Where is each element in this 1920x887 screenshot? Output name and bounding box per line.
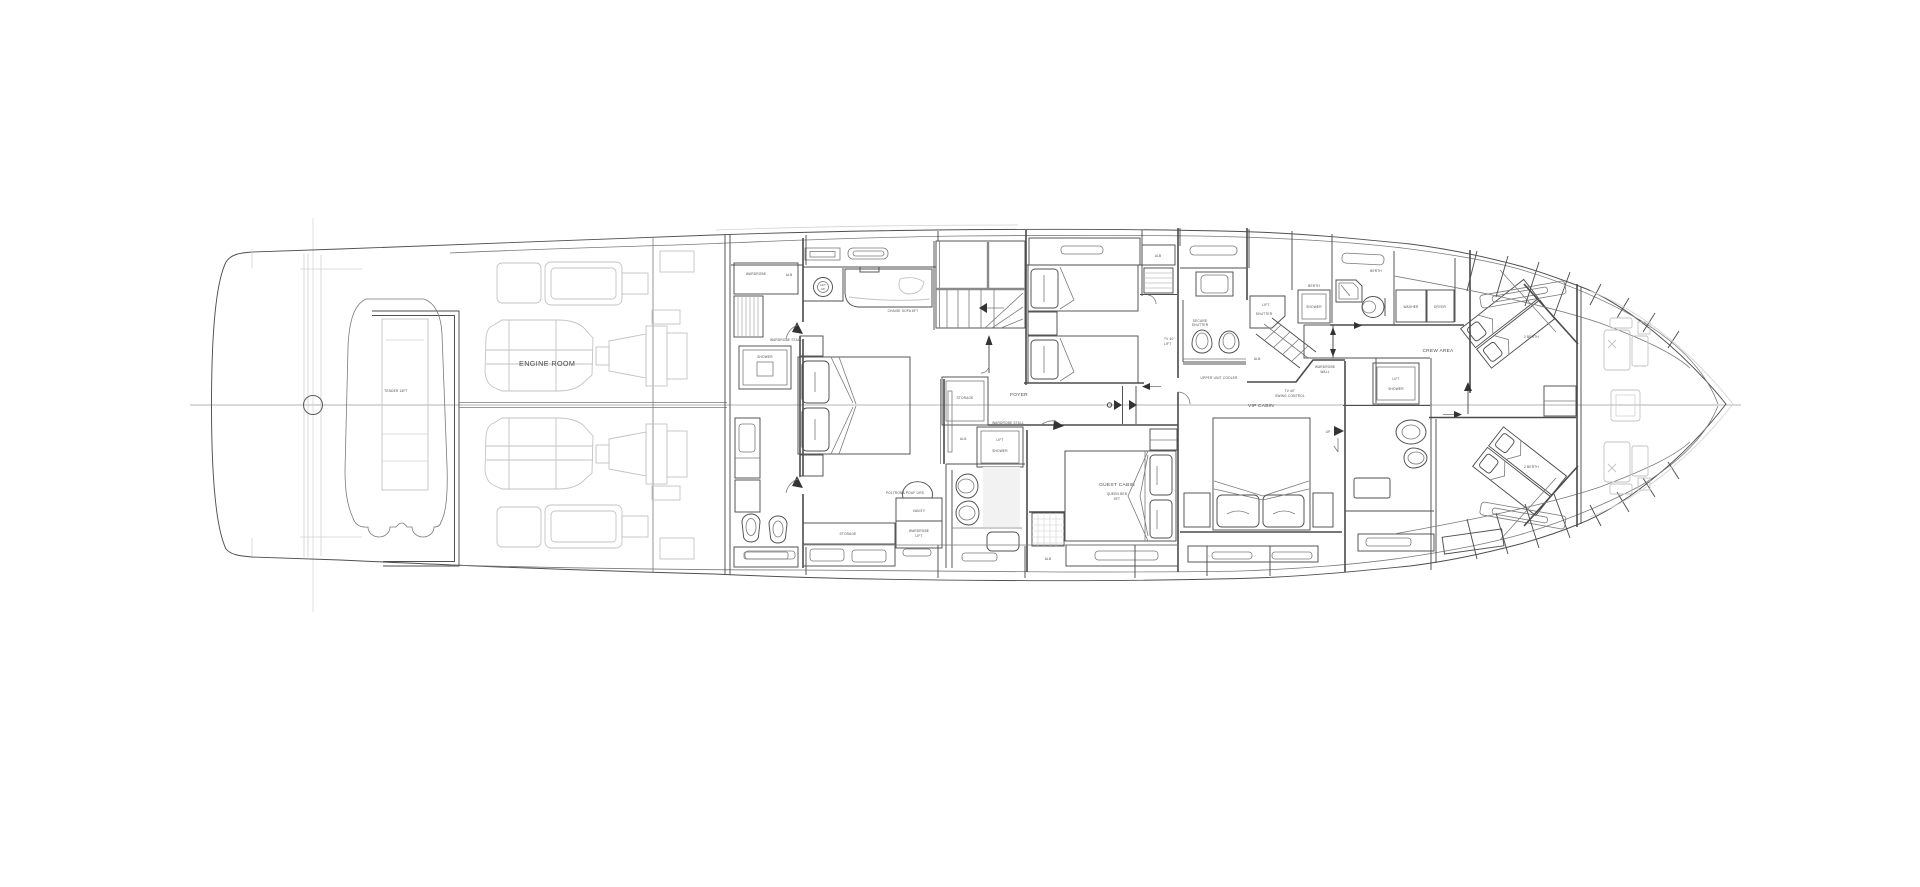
svg-text:LIFT: LIFT [996, 438, 1003, 442]
svg-text:SHUTTER: SHUTTER [1256, 312, 1273, 316]
svg-text:STORAGE: STORAGE [957, 396, 974, 400]
svg-text:SHOWER: SHOWER [1388, 387, 1404, 391]
svg-text:SHOWER: SHOWER [992, 449, 1008, 453]
svg-text:CREW AREA: CREW AREA [1422, 348, 1454, 354]
svg-text:UP: UP [1326, 430, 1331, 434]
svg-text:2 BERTH: 2 BERTH [1524, 465, 1539, 469]
svg-text:ALB: ALB [1045, 557, 1052, 561]
svg-text:STORAGE: STORAGE [840, 532, 857, 536]
svg-text:GUEST CABIN: GUEST CABIN [1099, 482, 1135, 488]
svg-text:ENGINE ROOM: ENGINE ROOM [519, 359, 575, 368]
svg-text:UP: UP [821, 287, 825, 291]
svg-text:TENDER 16FT: TENDER 16FT [384, 389, 408, 393]
svg-text:ALB: ALB [1254, 357, 1261, 361]
svg-text:QUEEN BED: QUEEN BED [1107, 492, 1128, 496]
svg-text:TV 40": TV 40" [1164, 337, 1175, 341]
svg-text:BERTH: BERTH [1308, 284, 1320, 288]
svg-text:LIFT: LIFT [1262, 303, 1269, 307]
svg-text:FOYER: FOYER [1010, 392, 1028, 398]
svg-text:SHUTTER: SHUTTER [1192, 323, 1209, 327]
svg-text:DRYER: DRYER [1434, 305, 1447, 309]
svg-text:LIFT: LIFT [915, 534, 922, 538]
svg-text:WALL: WALL [1320, 370, 1329, 374]
svg-text:TV 40": TV 40" [1285, 389, 1296, 393]
svg-text:VIP CABIN: VIP CABIN [1248, 403, 1274, 409]
svg-text:SHOWER: SHOWER [757, 355, 773, 359]
svg-text:CHAISE SOFA 6FT: CHAISE SOFA 6FT [888, 309, 919, 313]
svg-text:WASHER: WASHER [1403, 305, 1419, 309]
svg-text:POLTRONA POUF GRS: POLTRONA POUF GRS [886, 491, 924, 495]
svg-text:WARDROBE: WARDROBE [1315, 365, 1335, 369]
svg-text:SWING CONTROL: SWING CONTROL [1275, 394, 1305, 398]
svg-text:BERTH: BERTH [1370, 269, 1382, 273]
svg-text:ALB: ALB [786, 273, 793, 277]
svg-text:LIFT: LIFT [1164, 342, 1171, 346]
svg-text:ALB: ALB [960, 437, 967, 441]
svg-text:SHOWER: SHOWER [1306, 305, 1322, 309]
svg-text:WARDROBE: WARDROBE [909, 529, 929, 533]
svg-text:LIFT: LIFT [1392, 377, 1399, 381]
svg-text:ALB: ALB [1155, 254, 1162, 258]
svg-text:VANITY: VANITY [913, 509, 926, 513]
svg-text:2 BERTH: 2 BERTH [1524, 335, 1539, 339]
svg-text:UPPER UNIT COOLER: UPPER UNIT COOLER [1201, 376, 1238, 380]
svg-text:WARDROBE: WARDROBE [746, 272, 766, 276]
svg-text:5FT: 5FT [1114, 497, 1120, 501]
